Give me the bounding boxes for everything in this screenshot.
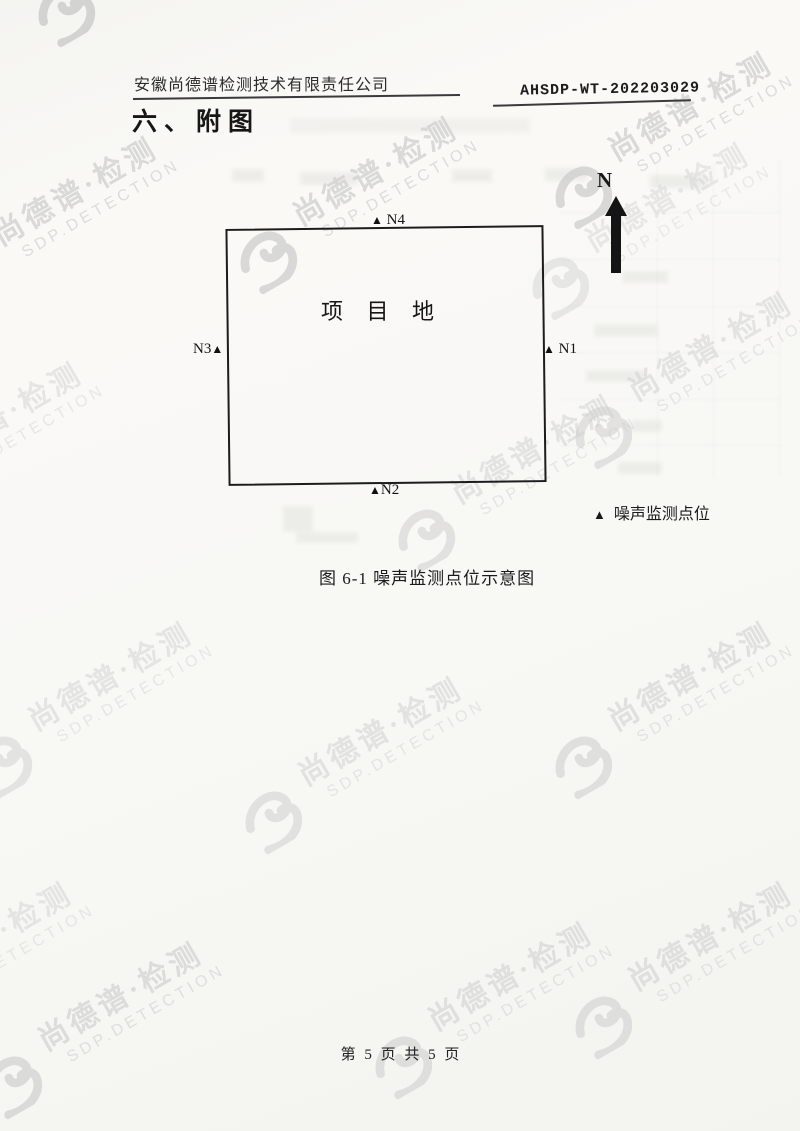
header-rule-right bbox=[493, 99, 691, 107]
triangle-icon: ▲ bbox=[211, 342, 223, 356]
header-company-name: 安徽尚德谱检测技术有限责任公司 bbox=[134, 71, 389, 95]
marker-n2: ▲N2 bbox=[369, 482, 399, 499]
marker-n4: ▲ N4 bbox=[371, 212, 405, 229]
triangle-icon: ▲ bbox=[543, 342, 555, 356]
marker-n3: N3▲ bbox=[193, 341, 223, 358]
legend-label: 噪声监测点位 bbox=[614, 506, 710, 523]
figure-legend: ▲噪声监测点位 bbox=[593, 500, 710, 524]
legend-triangle-icon: ▲ bbox=[593, 507, 606, 522]
marker-n1: ▲ N1 bbox=[543, 341, 577, 358]
marker-label: N2 bbox=[381, 482, 399, 498]
section-title: 六、附图 bbox=[132, 102, 260, 138]
page-footer: 第 5 页 共 5 页 bbox=[0, 1043, 800, 1064]
marker-label: N3 bbox=[193, 341, 211, 357]
site-boundary-rect bbox=[225, 225, 546, 486]
triangle-icon: ▲ bbox=[371, 213, 383, 227]
site-label: 项 目 地 bbox=[321, 294, 436, 326]
page-content: 安徽尚德谱检测技术有限责任公司 AHSDP-WT-202203029 六、附图 … bbox=[0, 0, 800, 1131]
north-arrow-shaft bbox=[611, 214, 621, 273]
marker-label: N4 bbox=[387, 212, 405, 228]
triangle-icon: ▲ bbox=[369, 483, 381, 497]
scanned-report-page: 尚德谱·检测SDP.DETECTION 尚德谱·检测SDP.DETECTION … bbox=[0, 0, 800, 1131]
marker-label: N1 bbox=[559, 341, 577, 357]
header-report-number: AHSDP-WT-202203029 bbox=[520, 79, 700, 99]
north-arrow-icon bbox=[605, 196, 627, 216]
figure-caption: 图 6-1 噪声监测点位示意图 bbox=[319, 564, 535, 589]
north-label: N bbox=[597, 168, 612, 193]
